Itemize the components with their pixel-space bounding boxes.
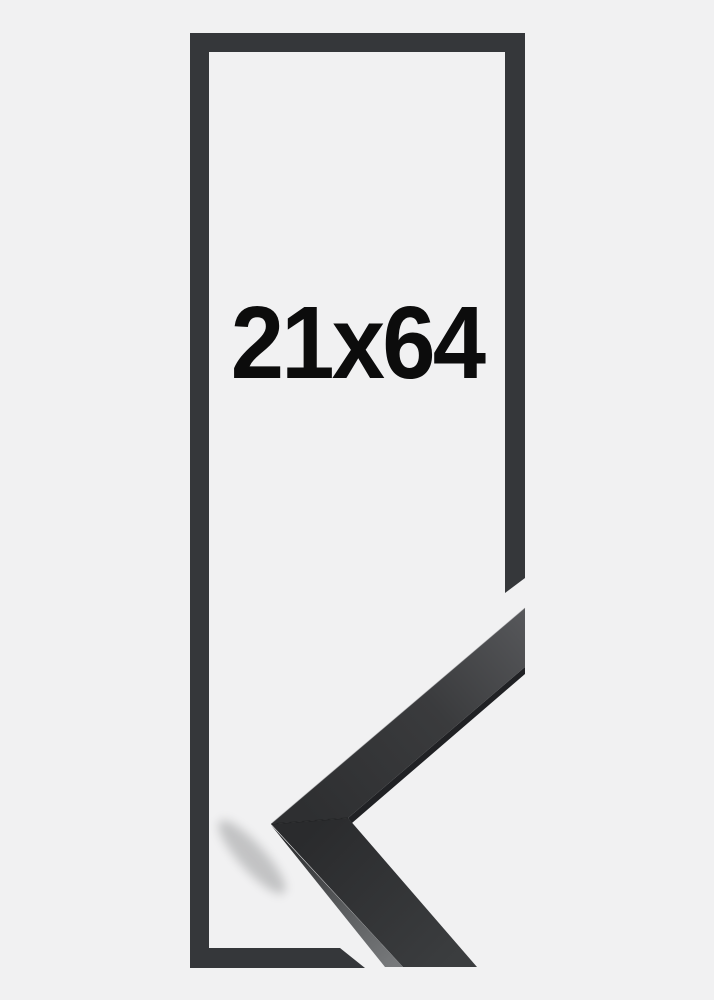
frame-outline-graphic [0, 0, 714, 1000]
frame-top-bar [190, 33, 525, 52]
frame-bottom-bar [190, 948, 365, 968]
frame-outline [190, 33, 525, 968]
frame-left-bar [190, 33, 209, 968]
corner-upper-arm-highlight [272, 608, 525, 823]
product-image: 21x64 [0, 0, 714, 1000]
frame-corner-sample [210, 608, 525, 967]
frame-size-label: 21x64 [25, 291, 689, 394]
